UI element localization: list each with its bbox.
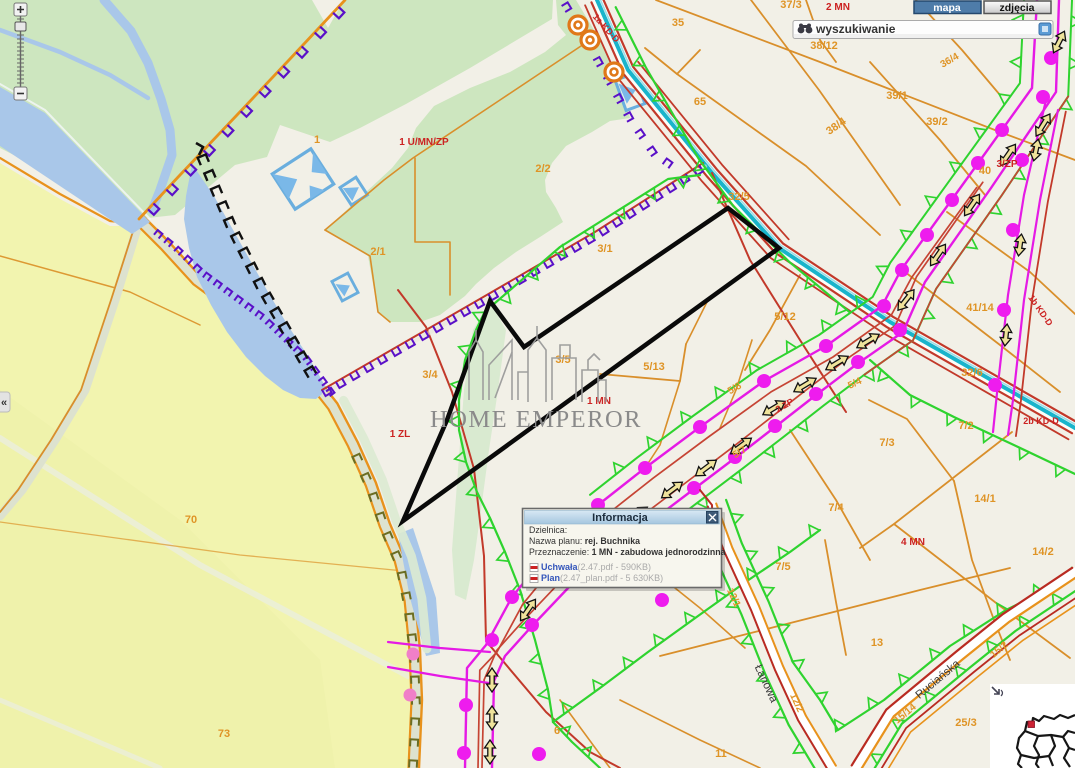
svg-text:25/3: 25/3: [955, 717, 976, 729]
svg-text:38/12: 38/12: [810, 40, 838, 52]
svg-text:1 ZL: 1 ZL: [390, 429, 411, 440]
svg-text:«: «: [1, 397, 7, 409]
svg-text:3/4: 3/4: [422, 369, 438, 381]
svg-text:7/5: 7/5: [775, 561, 790, 573]
svg-text:Plan(2.47_plan.pdf - 5 630KB): Plan(2.47_plan.pdf - 5 630KB): [541, 573, 663, 583]
svg-text:zdjęcia: zdjęcia: [999, 2, 1034, 14]
svg-text:5/12: 5/12: [774, 311, 795, 323]
svg-text:7/4: 7/4: [828, 502, 844, 514]
svg-text:7/3: 7/3: [879, 437, 894, 449]
svg-text:13: 13: [871, 637, 883, 649]
svg-text:2b KD-D: 2b KD-D: [1023, 416, 1059, 426]
svg-text:1 U/MN/ZP: 1 U/MN/ZP: [399, 137, 449, 148]
svg-text:mapa: mapa: [933, 2, 961, 14]
svg-text:2 MN: 2 MN: [826, 2, 850, 13]
svg-text:Informacja: Informacja: [592, 512, 649, 524]
svg-text:Uchwała(2.47.pdf - 590KB): Uchwała(2.47.pdf - 590KB): [541, 562, 651, 572]
svg-text:6: 6: [554, 725, 560, 737]
svg-text:3/5: 3/5: [555, 354, 570, 366]
svg-text:14/2: 14/2: [1032, 546, 1053, 558]
svg-text:2/2: 2/2: [535, 163, 550, 175]
svg-text:11: 11: [715, 748, 727, 760]
svg-text:Nazwa planu: rej. Buchnika: Nazwa planu: rej. Buchnika: [529, 536, 640, 546]
svg-text:4 MN: 4 MN: [901, 537, 925, 548]
svg-text:39/2: 39/2: [926, 116, 947, 128]
svg-text:HOME EMPEROR: HOME EMPEROR: [430, 406, 642, 433]
svg-text:3/1: 3/1: [597, 243, 612, 255]
svg-text:5/13: 5/13: [643, 361, 664, 373]
svg-text:70: 70: [185, 514, 197, 526]
svg-text:wyszukiwanie: wyszukiwanie: [815, 22, 896, 36]
svg-text:14/1: 14/1: [974, 493, 995, 505]
svg-text:32/6: 32/6: [961, 367, 982, 379]
svg-text:35: 35: [672, 17, 684, 29]
svg-text:1: 1: [314, 134, 320, 146]
svg-text:65: 65: [694, 96, 706, 108]
svg-text:3/ZP: 3/ZP: [996, 159, 1017, 170]
svg-text:32/5: 32/5: [728, 191, 749, 203]
svg-text:41/14: 41/14: [966, 302, 994, 314]
svg-text:7/2: 7/2: [958, 420, 973, 432]
svg-text:73: 73: [218, 728, 230, 740]
svg-text:2/1: 2/1: [370, 246, 385, 258]
svg-text:Przeznaczenie: 1 MN - zabudowa: Przeznaczenie: 1 MN - zabudowa jednorodz…: [529, 547, 726, 557]
svg-text:39/1: 39/1: [886, 90, 907, 102]
svg-text:37/3: 37/3: [780, 0, 801, 11]
svg-text:40: 40: [979, 165, 991, 177]
svg-text:Dzielnica:: Dzielnica:: [529, 525, 567, 535]
